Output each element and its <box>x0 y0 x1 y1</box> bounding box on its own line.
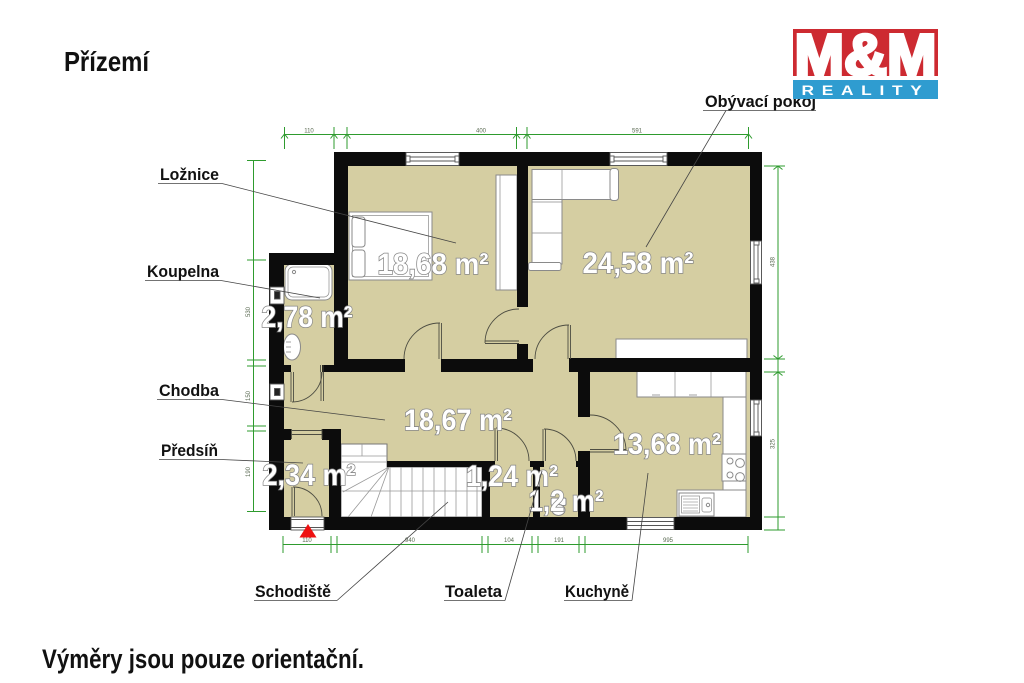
svg-text:591: 591 <box>632 129 643 135</box>
svg-text:995: 995 <box>663 538 674 544</box>
svg-text:REALITY: REALITY <box>802 83 930 98</box>
svg-text:110: 110 <box>302 538 312 544</box>
svg-text:104: 104 <box>504 538 515 544</box>
svg-text:150: 150 <box>246 390 252 401</box>
svg-text:Koupelna: Koupelna <box>147 262 220 281</box>
svg-text:18,68 m²: 18,68 m² <box>378 248 489 281</box>
svg-text:24,58 m²: 24,58 m² <box>583 247 694 280</box>
svg-text:Schodiště: Schodiště <box>255 582 331 601</box>
svg-text:325: 325 <box>771 438 777 449</box>
svg-text:18,67 m²: 18,67 m² <box>404 404 512 437</box>
svg-text:Přízemí: Přízemí <box>64 46 150 77</box>
svg-text:13,68 m²: 13,68 m² <box>613 428 721 461</box>
svg-text:530: 530 <box>246 306 252 317</box>
svg-text:Výměry jsou pouze orientační.: Výměry jsou pouze orientační. <box>42 644 364 674</box>
svg-text:Toaleta: Toaleta <box>445 582 503 601</box>
svg-text:190: 190 <box>246 466 252 477</box>
svg-text:Ložnice: Ložnice <box>160 165 219 184</box>
svg-text:Chodba: Chodba <box>159 381 220 400</box>
svg-text:438: 438 <box>771 256 777 267</box>
svg-text:M&M: M&M <box>795 23 937 88</box>
svg-text:400: 400 <box>476 129 487 135</box>
svg-text:1,2 m²: 1,2 m² <box>529 485 604 518</box>
svg-text:2,78 m²: 2,78 m² <box>262 301 353 334</box>
svg-text:2,34 m²: 2,34 m² <box>263 459 356 492</box>
svg-text:110: 110 <box>304 129 314 135</box>
svg-text:Předsíň: Předsíň <box>161 441 218 460</box>
svg-text:Kuchyně: Kuchyně <box>565 582 629 601</box>
svg-text:191: 191 <box>554 538 565 544</box>
